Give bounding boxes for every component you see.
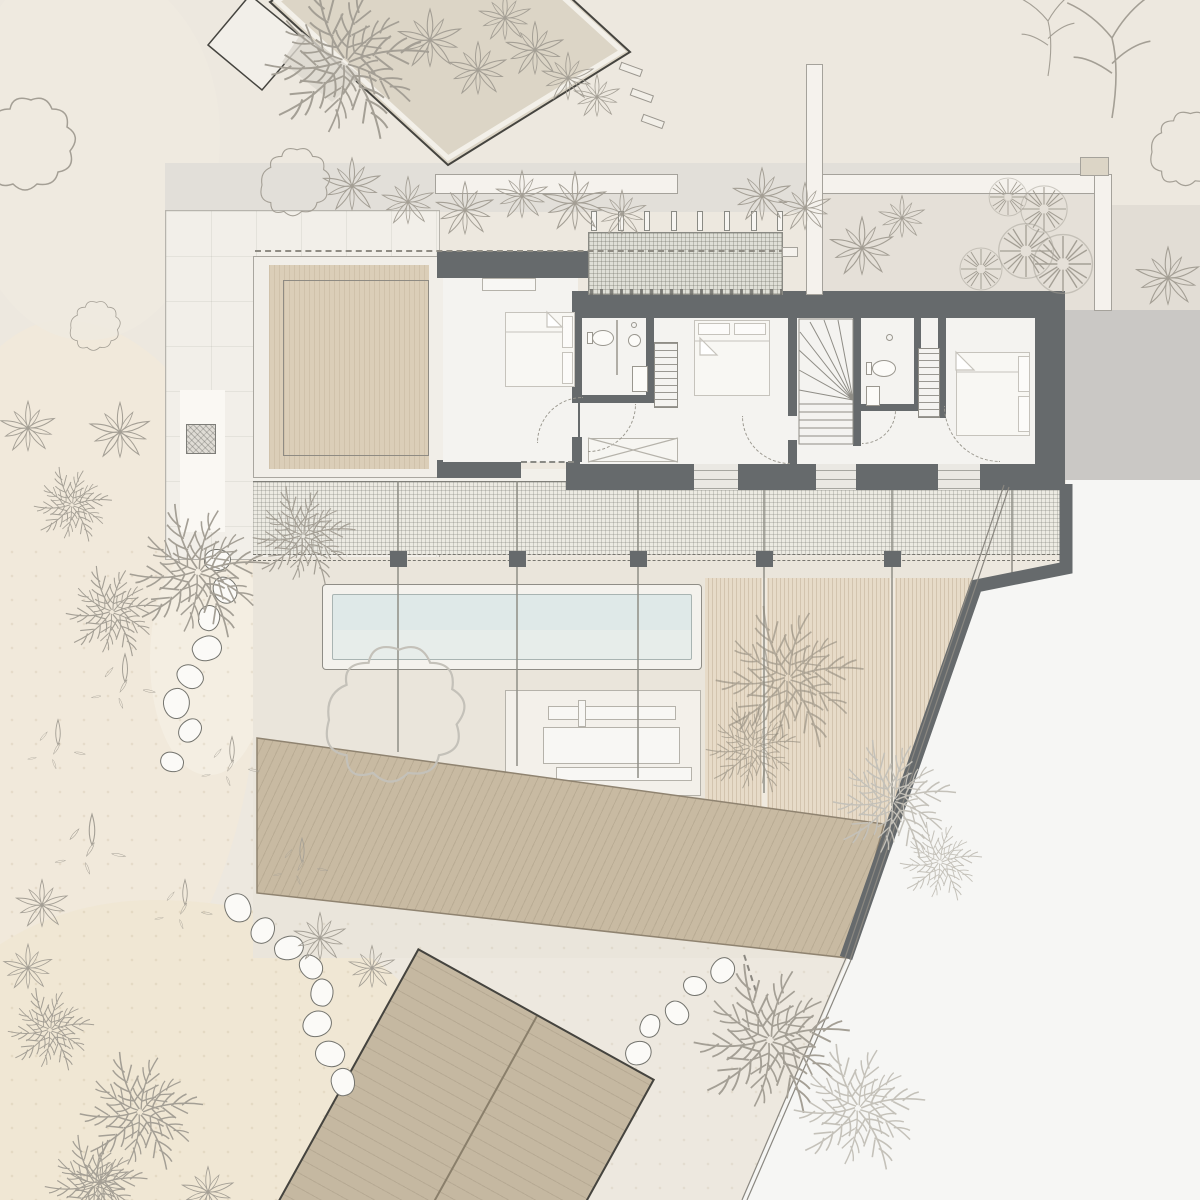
trellis-post <box>697 211 703 231</box>
trellis-post <box>777 211 783 231</box>
trellis-beam-tab <box>782 247 798 257</box>
trellis-post <box>591 211 597 231</box>
trellis-post <box>618 211 624 231</box>
trellis-post <box>671 211 677 231</box>
trellis-post <box>751 211 757 231</box>
fence-wall-right <box>1094 174 1112 311</box>
fence-column <box>806 64 823 295</box>
fence-cap-tan <box>1080 157 1109 176</box>
fence-beam-west <box>435 174 678 194</box>
fence-beam-east <box>822 174 1096 194</box>
trellis-post <box>644 211 650 231</box>
site-plan-canvas <box>0 0 1200 1200</box>
trellis-post <box>724 211 730 231</box>
site-dashed-line <box>255 250 785 252</box>
